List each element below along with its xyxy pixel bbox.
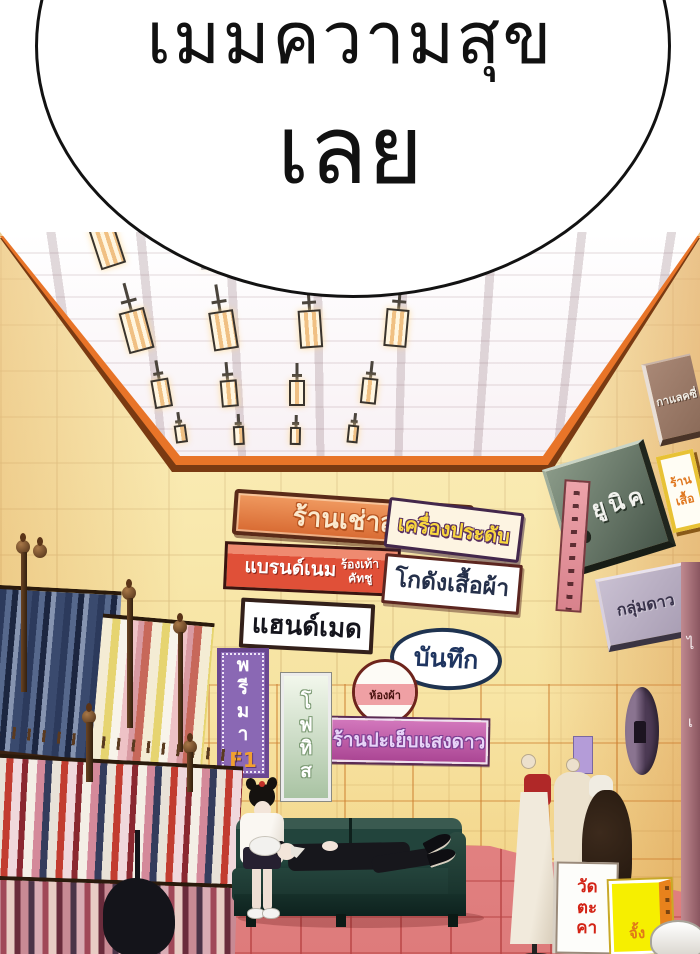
lap-cloth	[249, 836, 281, 856]
disc-mark	[634, 721, 646, 743]
woman-shoe	[262, 908, 280, 919]
sign-handmade: แฮนด์เมด	[239, 598, 375, 655]
light-stem	[225, 362, 230, 380]
light-fixture	[347, 412, 361, 443]
pillar-glyph-bottom: เ	[683, 710, 698, 734]
light-body	[290, 427, 301, 445]
rack-pole	[187, 752, 193, 792]
sign-constellation-text: กลุ่มดาว	[615, 588, 677, 624]
couch-leg	[448, 914, 458, 927]
sign-photis: โ ฟ ทิ ส	[281, 673, 331, 801]
light-body	[174, 424, 188, 444]
light-body	[119, 307, 155, 354]
sign-brand-name-text: แบรนด์เนม	[244, 551, 337, 585]
light-fixture	[80, 232, 126, 270]
light-fixture	[111, 280, 154, 354]
light-body	[219, 379, 238, 408]
speech-bubble-line2: เลย	[0, 74, 700, 225]
rack-pole	[127, 598, 133, 728]
wall-disc	[625, 687, 659, 775]
light-body	[208, 309, 239, 352]
sign-clothes-warehouse-text: โกดังเสื้อผ้า	[393, 561, 510, 607]
light-crossbar	[392, 299, 406, 303]
light-crossbar	[235, 421, 242, 424]
sign-brand-name: แบรนด์เนม ร้องเท้า คัทชู	[223, 541, 401, 597]
light-body	[233, 426, 245, 445]
light-stem	[369, 361, 374, 379]
light-stem	[122, 283, 132, 311]
sign-dress-shoes: ร้องเท้า คัทชู	[341, 556, 380, 586]
light-crossbar	[175, 419, 182, 423]
sign-fabric-room: ห้องผ้า	[352, 659, 418, 725]
light-body	[289, 380, 305, 406]
pillar-glyph-top: ไ	[683, 632, 698, 656]
comic-panel: ร้านเช่าสูท แบรนด์เนม ร้องเท้า คัทชู เคร…	[0, 0, 700, 954]
sign-jewelry-text: เครื่องประดับ	[396, 507, 512, 552]
light-body	[384, 308, 411, 348]
light-body	[150, 378, 172, 409]
light-fixture	[360, 360, 381, 405]
mannequin-head	[566, 758, 580, 772]
sign-sewing-shop-text: ร้านปะเย็บแสงดาว	[332, 725, 485, 758]
light-crossbar	[293, 422, 300, 425]
light-crossbar	[366, 371, 376, 375]
light-crossbar	[351, 420, 358, 424]
sign-unique-text: ยูนิค	[587, 477, 652, 528]
man-hands	[322, 841, 338, 851]
sign-temple-board-text: วัด ตะ คา	[576, 877, 598, 940]
sign-fabric-room-band: ห้องผ้า	[355, 684, 415, 705]
light-body	[360, 378, 379, 406]
light-crossbar	[302, 300, 316, 304]
sign-galaxy-text: กาแลคซี่	[654, 384, 698, 411]
sign-sewing-shop: ร้านปะเย็บแสงดาว	[330, 718, 489, 765]
light-fixture	[290, 415, 302, 445]
sign-prima-text: พ รี ม า	[237, 654, 250, 747]
woman-hair-ornament	[259, 781, 265, 787]
couch-leg	[336, 914, 346, 927]
rack-pole	[21, 552, 27, 692]
light-fixture	[204, 282, 239, 352]
light-crossbar	[222, 373, 232, 377]
light-body	[347, 424, 360, 443]
sign-fabric-room-text: ห้องผ้า	[369, 686, 401, 704]
light-crossbar	[292, 374, 302, 377]
sign-photis-text: โ ฟ ทิ ส	[299, 691, 312, 784]
sign-handmade-text: แฮนด์เมด	[251, 603, 363, 650]
rack-pole	[178, 632, 183, 752]
light-fixture	[147, 359, 173, 409]
light-stem	[154, 360, 160, 379]
light-body	[88, 232, 126, 270]
sign-dress-shoes-line1: ร้องเท้า	[341, 556, 380, 571]
rack-finial	[33, 544, 47, 558]
sign-note-text: บันทึก	[413, 637, 480, 680]
light-fixture	[172, 411, 188, 444]
light-fixture	[289, 363, 305, 406]
sign-shirt-shop-text: ร้านเสื้อ	[664, 469, 700, 513]
right-pillar: ไ เ	[681, 562, 700, 954]
sign-yellow-board-text: จั้ง	[629, 921, 646, 946]
hatbox	[650, 920, 700, 954]
shop-scene: ร้านเช่าสูท แบรนด์เนม ร้องเท้า คัทชู เคร…	[0, 232, 700, 954]
woman-leg	[263, 866, 272, 910]
light-stem	[295, 363, 298, 380]
light-body	[298, 309, 324, 348]
woman-leg	[252, 866, 261, 910]
light-stem	[214, 284, 221, 311]
rack-pole	[86, 722, 93, 782]
mannequin-head	[521, 754, 536, 769]
sign-dress-shoes-line2: คัทชู	[341, 571, 380, 586]
light-fixture	[218, 361, 239, 408]
light-fixture	[232, 414, 245, 445]
